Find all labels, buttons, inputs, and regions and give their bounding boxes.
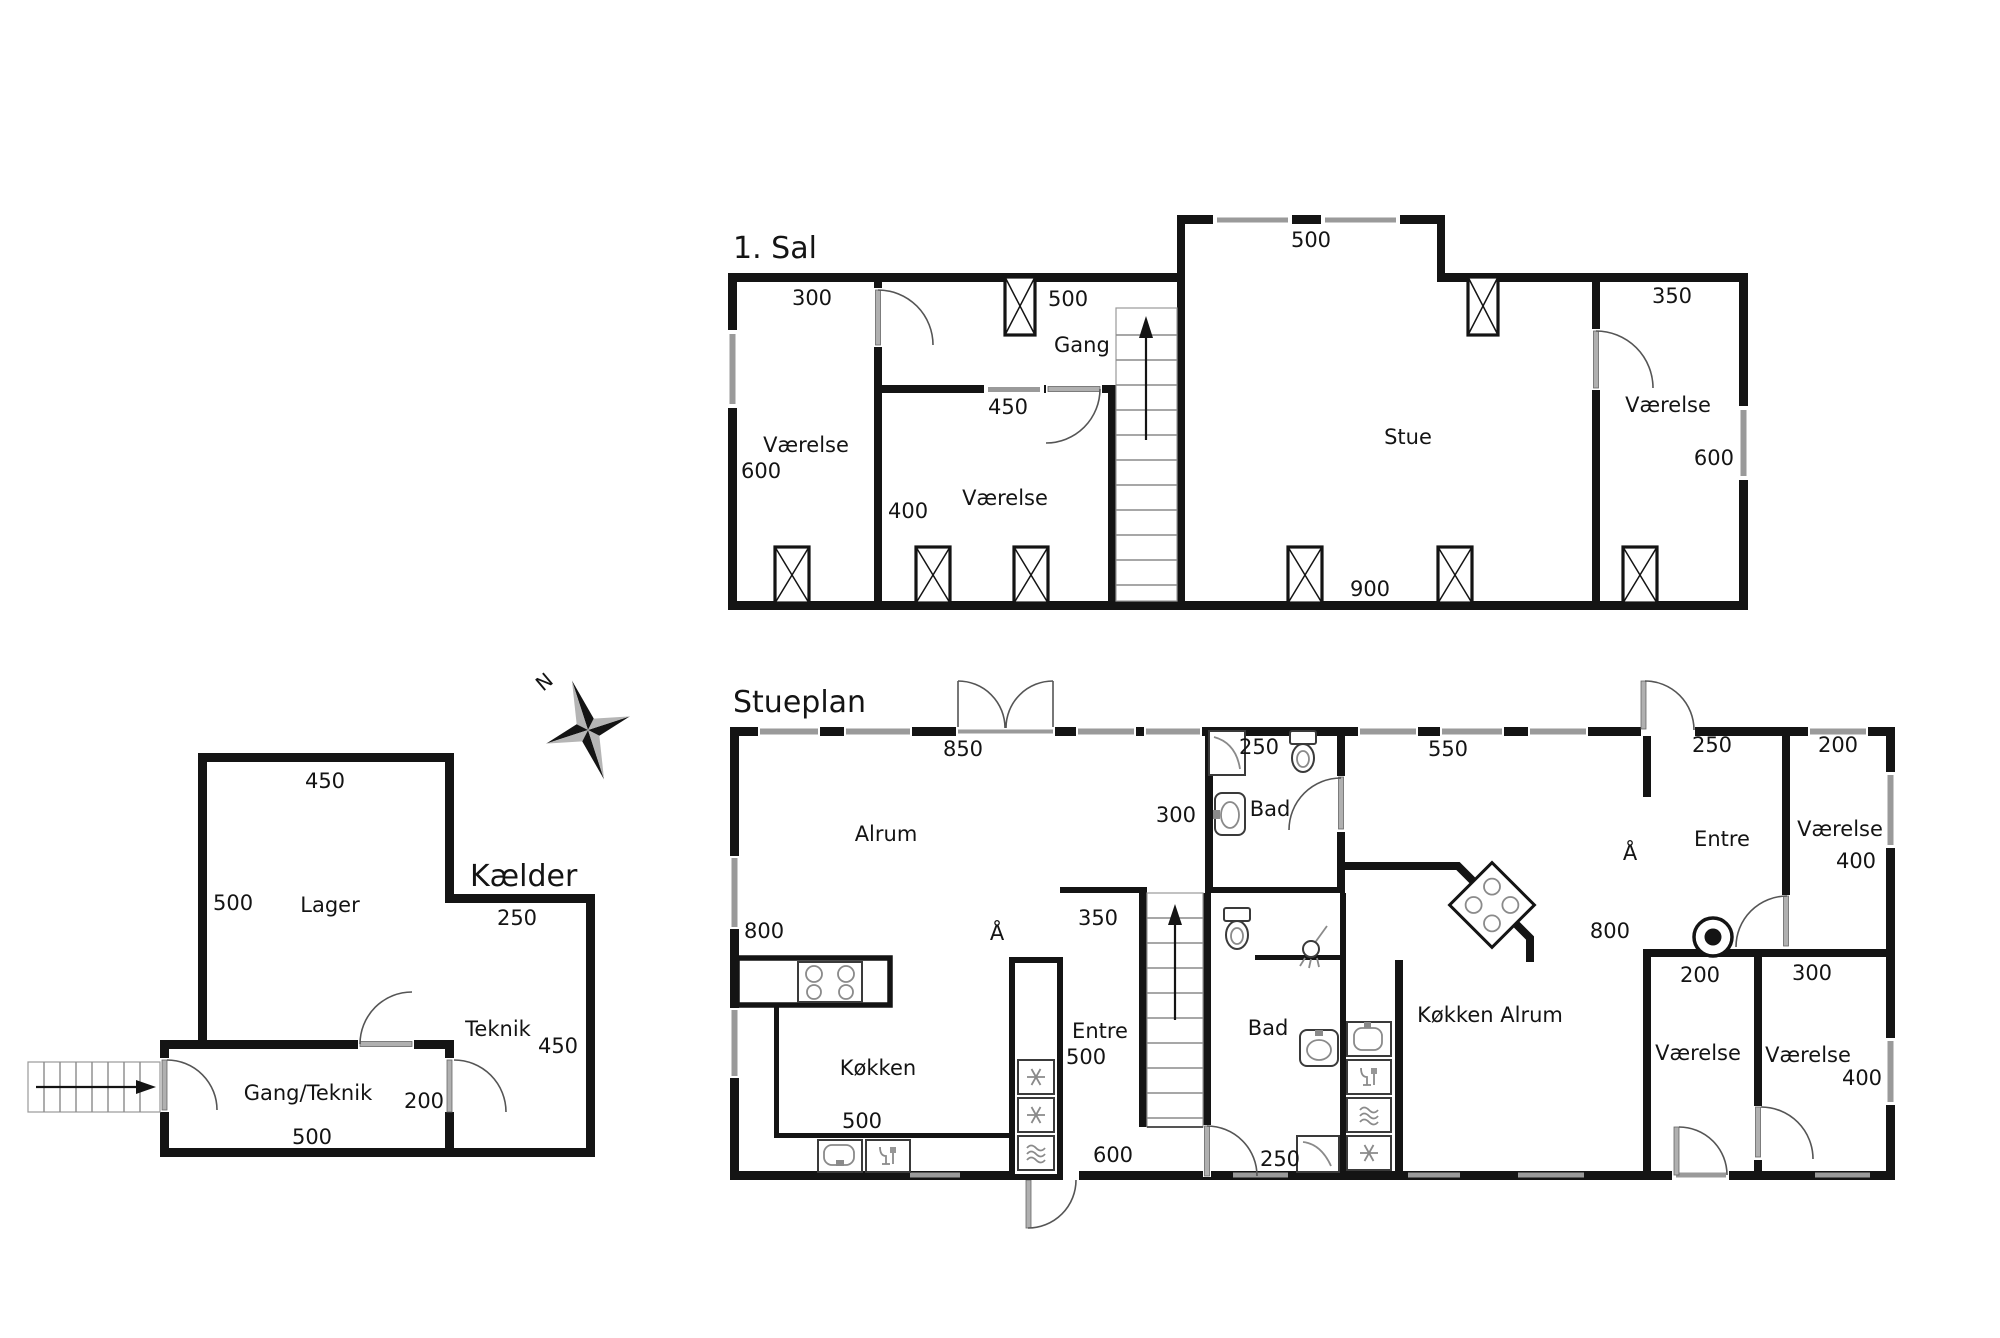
room-label: Lager — [300, 893, 360, 917]
ground-floor-stairs — [1147, 893, 1203, 1128]
dim-label: 500 — [1048, 287, 1088, 311]
bathroom-bottom-fixtures — [1224, 908, 1339, 1172]
room-label: Entre — [1694, 827, 1750, 851]
dim-label: 450 — [305, 769, 345, 793]
room-label: Værelse — [1625, 393, 1711, 417]
compass-rose: N — [524, 647, 646, 793]
room-label: Teknik — [464, 1017, 531, 1041]
room-label: Stue — [1384, 425, 1432, 449]
ground-floor-plan: Stueplan — [728, 681, 1896, 1228]
open-connection-mark: Å — [1623, 839, 1638, 865]
double-door — [956, 681, 1055, 736]
dim-label: 300 — [1792, 961, 1832, 985]
dim-label: 600 — [1093, 1143, 1133, 1167]
kitchen-sink-icon — [818, 1140, 862, 1172]
room-label: Køkken Alrum — [1417, 1003, 1563, 1027]
window-symbol — [1076, 726, 1136, 737]
dim-label: 800 — [1590, 919, 1630, 943]
room-label: Værelse — [1765, 1043, 1851, 1067]
first-floor-doors — [874, 288, 1653, 443]
first-floor-stairs — [1116, 308, 1177, 601]
dishwasher-icon — [1347, 1060, 1391, 1094]
dim-label: 600 — [741, 459, 781, 483]
door — [1289, 776, 1345, 832]
dim-label: 500 — [842, 1109, 882, 1133]
plan-title-ground-floor: Stueplan — [733, 685, 866, 720]
room-label: Gang — [1054, 333, 1110, 357]
room-label: Bad — [1248, 1016, 1289, 1040]
window-symbol — [916, 547, 950, 603]
window-symbol — [728, 1008, 740, 1078]
door — [874, 288, 933, 347]
tall-appliance-column — [1012, 960, 1060, 1177]
dim-label: 400 — [888, 499, 928, 523]
sink-icon — [1213, 793, 1245, 835]
bathtub-icon — [1297, 1136, 1339, 1172]
dishwasher-icon — [866, 1140, 910, 1172]
window-symbol — [1623, 547, 1657, 603]
door — [1203, 1125, 1257, 1177]
dim-label: 300 — [792, 286, 832, 310]
dim-label: 600 — [1694, 446, 1734, 470]
room-label: Værelse — [763, 433, 849, 457]
basement-walls — [160, 753, 595, 1157]
utility-sink-icon — [1347, 1022, 1391, 1056]
dim-label: 200 — [404, 1089, 444, 1113]
room-label: Alrum — [855, 822, 918, 846]
dim-label: 550 — [1428, 737, 1468, 761]
dim-label: 850 — [943, 737, 983, 761]
window-symbol — [984, 384, 1044, 394]
room-label: Entre — [1072, 1019, 1128, 1043]
window-symbol — [775, 547, 809, 603]
window-symbol — [728, 856, 740, 929]
door — [1672, 1127, 1729, 1180]
first-floor-plan: 1. Sal — [726, 215, 1749, 611]
roof-window-icon — [1468, 277, 1498, 335]
window-symbol — [1440, 726, 1504, 737]
wood-stove-icon — [1694, 918, 1732, 956]
basement-plan: Kælder 450 500 — [28, 753, 595, 1157]
window-symbol — [1737, 406, 1749, 480]
door — [1736, 895, 1790, 949]
floor-plan-canvas: 1. Sal — [0, 0, 2000, 1338]
oven-icon — [1018, 1136, 1054, 1170]
sink-icon — [1300, 1030, 1338, 1066]
door — [1754, 1106, 1813, 1160]
window-symbol — [1884, 1038, 1896, 1105]
dim-label: 450 — [988, 395, 1028, 419]
dim-label: 250 — [1260, 1147, 1300, 1171]
roof-window-icon — [1005, 277, 1035, 335]
window-symbol — [1438, 547, 1472, 603]
window-symbol — [1528, 726, 1588, 737]
cooktop-icon — [798, 962, 862, 1002]
window-symbol — [1358, 726, 1418, 737]
window-symbol — [910, 1173, 960, 1178]
dim-label: 500 — [1291, 228, 1331, 252]
dim-label: 500 — [292, 1125, 332, 1149]
window-symbol — [1408, 1173, 1460, 1178]
door — [445, 1058, 506, 1112]
room-label: Gang/Teknik — [244, 1081, 373, 1105]
door — [1592, 329, 1653, 390]
dim-label: 200 — [1818, 733, 1858, 757]
window-symbol — [1144, 726, 1202, 737]
dim-label: 500 — [1066, 1045, 1106, 1069]
dim-label: 900 — [1350, 577, 1390, 601]
plan-title-first-floor: 1. Sal — [733, 231, 817, 266]
floor-plan-page: 1. Sal — [0, 0, 2000, 1338]
door — [1046, 385, 1102, 443]
freezer-icon — [1018, 1098, 1054, 1132]
first-floor-walls — [728, 215, 1748, 610]
dim-label: 350 — [1652, 284, 1692, 308]
open-connection-mark: Å — [990, 919, 1005, 945]
window-symbol — [1213, 215, 1292, 225]
basement-exterior-stairs — [28, 1062, 160, 1112]
room-label: Køkken — [840, 1056, 916, 1080]
shower-head-icon — [1300, 926, 1327, 968]
dim-label: 500 — [213, 891, 253, 915]
door — [160, 1058, 217, 1112]
toilet-icon — [1224, 908, 1250, 949]
dim-label: 400 — [1836, 849, 1876, 873]
dim-label: 250 — [1239, 735, 1279, 759]
window-symbol — [1014, 547, 1048, 603]
first-floor-labels: 300 Værelse 600 500 Gang 500 450 Værelse… — [741, 228, 1734, 601]
window-symbol — [758, 726, 820, 737]
room-label: Værelse — [1797, 817, 1883, 841]
window-symbol — [1288, 547, 1322, 603]
toilet-icon — [1290, 731, 1316, 772]
room-label: Værelse — [1655, 1041, 1741, 1065]
plan-title-basement: Kælder — [470, 859, 578, 894]
dim-label: 400 — [1842, 1066, 1882, 1090]
dim-label: 200 — [1680, 963, 1720, 987]
room-label: Bad — [1250, 797, 1291, 821]
fridge-icon — [1018, 1060, 1054, 1094]
window-symbol — [726, 330, 738, 408]
window-symbol — [1518, 1173, 1584, 1178]
kitchen-counter-edge — [774, 1005, 779, 1137]
window-symbol — [1884, 772, 1896, 848]
oven-icon — [1347, 1098, 1391, 1132]
dim-label: 350 — [1078, 906, 1118, 930]
window-symbol — [1233, 1173, 1288, 1178]
door — [1641, 681, 1695, 736]
dim-label: 300 — [1156, 803, 1196, 827]
basement-labels: 450 500 Lager 250 Teknik 450 Gang/Teknik… — [213, 769, 578, 1149]
compass-north-label: N — [531, 668, 558, 696]
freezer-icon — [1347, 1136, 1391, 1170]
utility-column — [1347, 1022, 1391, 1170]
window-symbol — [1321, 215, 1400, 225]
window-symbol — [844, 726, 912, 737]
door — [358, 992, 414, 1049]
window-symbol — [1815, 1173, 1870, 1178]
room-label: Værelse — [962, 486, 1048, 510]
kitchen-counter-edge — [774, 1133, 1014, 1138]
dim-label: 800 — [744, 919, 784, 943]
dim-label: 250 — [1692, 733, 1732, 757]
dim-label: 450 — [538, 1034, 578, 1058]
dim-label: 250 — [497, 906, 537, 930]
